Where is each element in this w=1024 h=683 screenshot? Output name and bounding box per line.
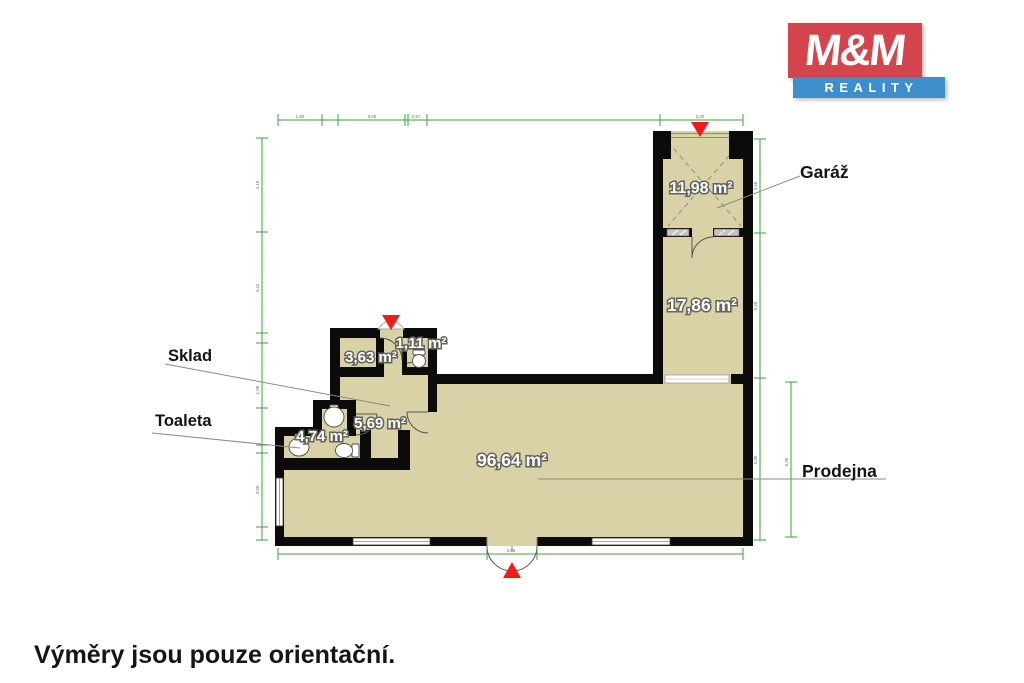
callout-shop: Prodejna: [802, 461, 877, 481]
floor-plan: 1,90 3,05 0,97 3,20 4,10 4,42 1,98 3,65 …: [0, 0, 1024, 683]
logo-red-block: M&M: [788, 23, 922, 78]
room-area-storage: 3,63 m²: [345, 349, 397, 366]
room-area-shop: 96,64 m²: [477, 450, 547, 470]
callout-garage: Garáž: [800, 162, 849, 182]
dimension-label: 3,65: [255, 485, 260, 494]
dimension-label: 2,05: [507, 548, 516, 553]
dimension-label: 3,56: [753, 181, 758, 190]
logo-reality-text: REALITY: [819, 80, 918, 95]
callout-toilet: Toaleta: [155, 412, 212, 430]
room-area-wc: 1,11 m²: [396, 335, 447, 352]
dimension-label: 1,90: [296, 114, 305, 119]
room-area-toilet: 4,74 m²: [296, 428, 348, 445]
room-area-hall: 5,69 m²: [354, 415, 406, 432]
toilet-icon: [413, 350, 426, 368]
dimension-label: 5,59: [753, 301, 758, 310]
room-area-room: 17,86 m²: [667, 295, 737, 315]
toilet-icon: [336, 444, 360, 458]
dimension-label: 0,97: [412, 114, 421, 119]
dimension-label: 6,80: [753, 455, 758, 464]
room-area-garage: 11,98 m²: [669, 180, 732, 197]
dimension-label: 3,20: [696, 114, 705, 119]
dimension-label: 3,05: [368, 114, 377, 119]
dimension-label: 4,42: [255, 283, 260, 292]
dimension-label: 6,95: [784, 457, 789, 466]
dimension-label: 1,98: [255, 385, 260, 394]
logo-blue-block: REALITY: [793, 77, 945, 98]
disclaimer-text: Výměry jsou pouze orientační.: [34, 641, 395, 670]
callout-storage: Sklad: [168, 347, 212, 365]
dimension-label: 4,10: [255, 180, 260, 189]
logo-mm-text: M&M: [803, 26, 907, 76]
floor-plan-page: 1,90 3,05 0,97 3,20 4,10 4,42 1,98 3,65 …: [0, 0, 1024, 683]
